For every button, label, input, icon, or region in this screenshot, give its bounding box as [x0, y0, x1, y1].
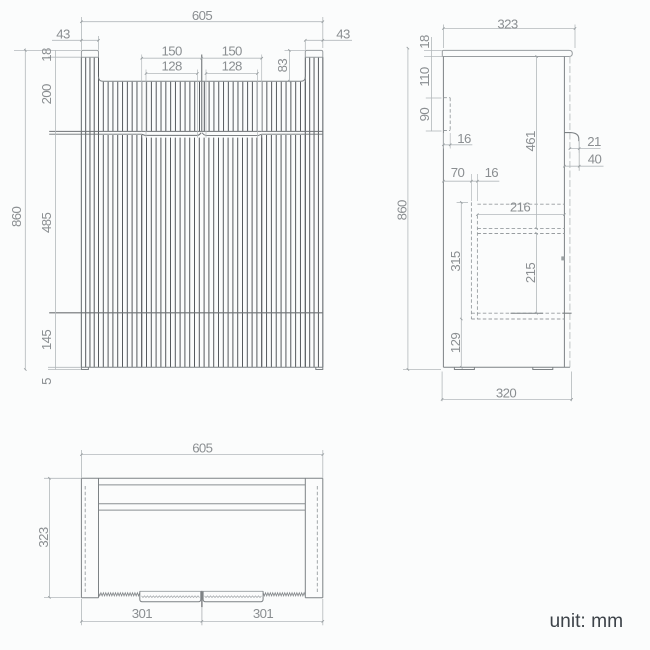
svg-text:40: 40: [588, 151, 602, 166]
svg-text:16: 16: [457, 131, 471, 146]
svg-text:216: 216: [510, 199, 530, 214]
svg-text:128: 128: [222, 59, 242, 74]
svg-text:18: 18: [417, 35, 432, 49]
svg-text:320: 320: [496, 386, 516, 401]
svg-text:200: 200: [39, 84, 54, 104]
svg-text:605: 605: [192, 8, 212, 23]
svg-text:301: 301: [132, 606, 152, 621]
svg-text:145: 145: [39, 330, 54, 350]
svg-text:5: 5: [39, 378, 54, 385]
svg-text:18: 18: [39, 48, 54, 62]
svg-text:215: 215: [523, 263, 538, 283]
svg-text:16: 16: [485, 165, 499, 180]
svg-text:605: 605: [192, 441, 212, 456]
svg-text:128: 128: [161, 59, 181, 74]
svg-text:301: 301: [253, 606, 273, 621]
svg-text:21: 21: [587, 134, 601, 149]
svg-text:150: 150: [161, 43, 181, 58]
svg-text:860: 860: [9, 207, 24, 227]
svg-text:43: 43: [336, 26, 350, 41]
svg-text:129: 129: [448, 333, 463, 353]
svg-text:860: 860: [395, 200, 410, 220]
svg-text:110: 110: [417, 67, 432, 86]
svg-text:43: 43: [56, 26, 70, 41]
svg-text:unit: mm: unit: mm: [550, 611, 624, 632]
svg-text:90: 90: [417, 108, 432, 122]
svg-text:150: 150: [222, 43, 242, 58]
svg-text:83: 83: [275, 59, 290, 73]
svg-text:323: 323: [36, 527, 51, 547]
svg-text:323: 323: [497, 16, 517, 31]
svg-text:485: 485: [39, 213, 54, 233]
svg-text:461: 461: [523, 131, 538, 151]
svg-text:70: 70: [451, 165, 465, 180]
svg-text:315: 315: [448, 251, 463, 271]
